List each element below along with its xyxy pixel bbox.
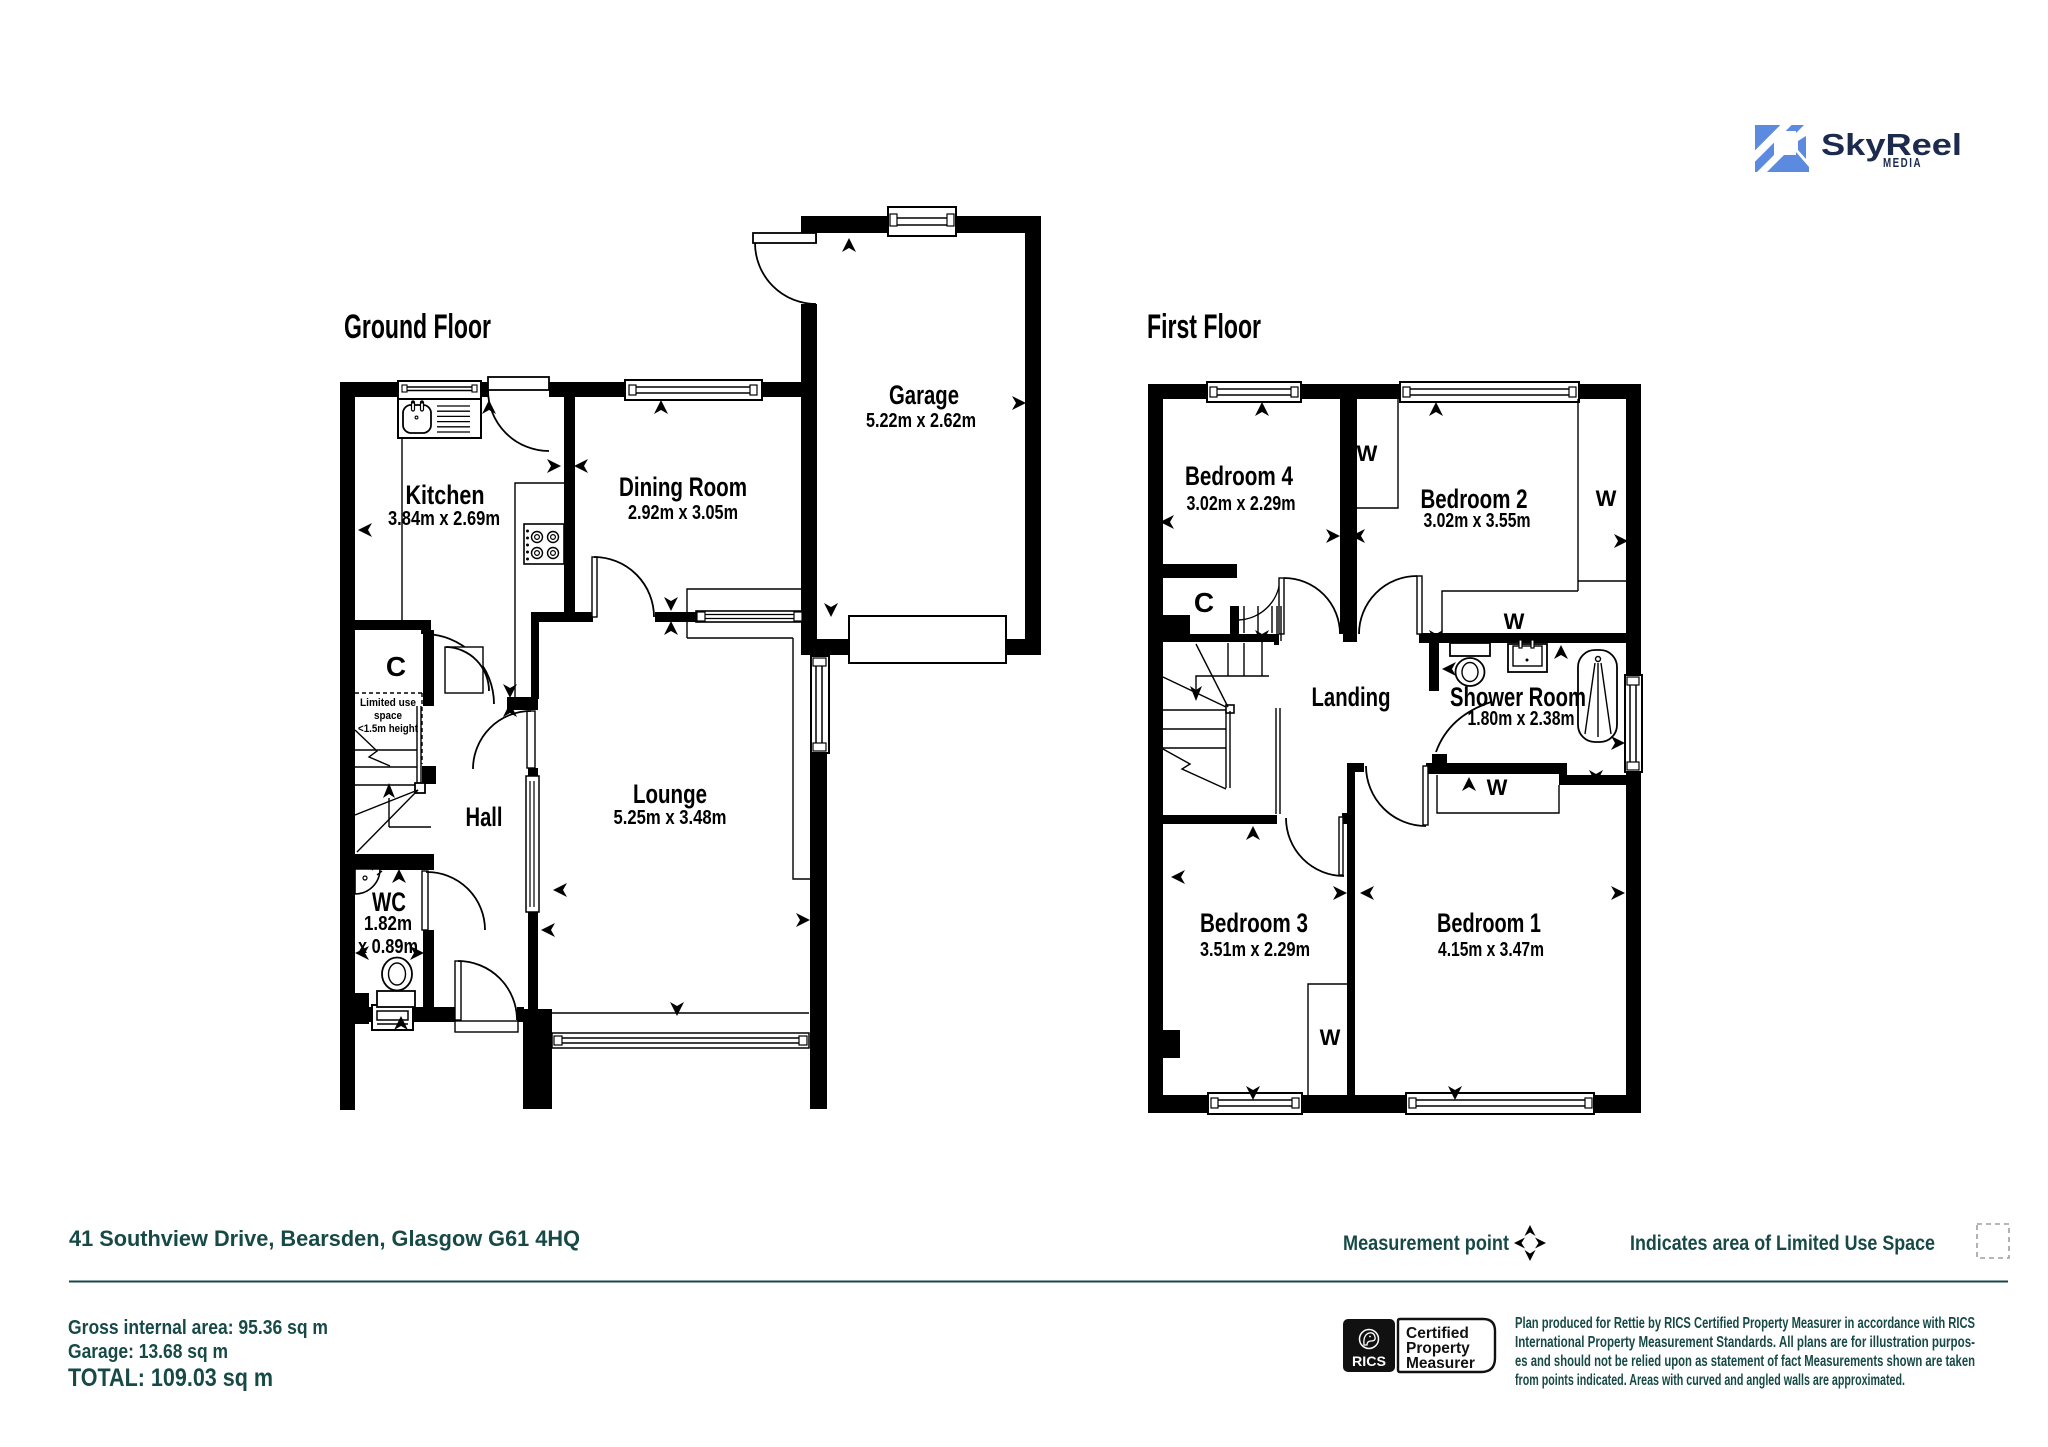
svg-text:Bedroom 3: Bedroom 3 (1200, 908, 1308, 938)
svg-text:W: W (1504, 609, 1525, 634)
svg-text:MEDIA: MEDIA (1883, 155, 1922, 170)
svg-text:<1.5m height: <1.5m height (358, 723, 418, 735)
svg-text:W: W (1357, 441, 1378, 466)
svg-text:1.82m: 1.82m (364, 913, 412, 935)
svg-text:4.15m x 3.47m: 4.15m x 3.47m (1438, 939, 1544, 961)
svg-text:1.80m x 2.38m: 1.80m x 2.38m (1468, 708, 1575, 730)
svg-text:41 Southview Drive, Bearsden,: 41 Southview Drive, Bearsden, Glasgow G6… (69, 1226, 580, 1251)
svg-text:3.02m x 2.29m: 3.02m x 2.29m (1187, 493, 1296, 515)
svg-text:Dining Room: Dining Room (619, 472, 747, 502)
svg-text:3.51m x 2.29m: 3.51m x 2.29m (1200, 939, 1310, 961)
svg-text:space: space (374, 710, 402, 722)
svg-text:3.84m x 2.69m: 3.84m x 2.69m (388, 508, 500, 530)
svg-text:International Property Measur: International Property Measurement Stand… (1515, 1334, 1975, 1351)
svg-text:Measurer: Measurer (1406, 1355, 1475, 1372)
svg-text:es and should not be relied up: es and should not be relied upon as stat… (1515, 1353, 1975, 1370)
svg-text:RICS: RICS (1352, 1353, 1386, 1369)
svg-text:First Floor: First Floor (1147, 308, 1261, 346)
svg-text:Ground Floor: Ground Floor (344, 308, 491, 346)
svg-text:Landing: Landing (1312, 682, 1391, 712)
svg-text:Bedroom 4: Bedroom 4 (1185, 461, 1293, 491)
svg-text:3.02m x 3.55m: 3.02m x 3.55m (1424, 510, 1531, 532)
svg-text:Gross internal area: 95.36 sq: Gross internal area: 95.36 sq m (68, 1317, 328, 1339)
svg-text:Hall: Hall (466, 802, 503, 832)
svg-text:W: W (1487, 775, 1508, 800)
svg-text:TOTAL: 109.03 sq m: TOTAL: 109.03 sq m (68, 1364, 273, 1392)
svg-text:Measurement point: Measurement point (1343, 1232, 1509, 1255)
svg-text:Indicates area of Limited Use: Indicates area of Limited Use Space (1630, 1232, 1935, 1255)
svg-text:W: W (1320, 1025, 1341, 1050)
svg-text:Plan produced for Rettie by RI: Plan produced for Rettie by RICS Certifi… (1515, 1315, 1975, 1332)
svg-text:C: C (1194, 587, 1214, 618)
svg-text:Kitchen: Kitchen (406, 480, 485, 510)
svg-text:5.22m x 2.62m: 5.22m x 2.62m (866, 410, 976, 432)
svg-text:from points indicated. Areas w: from points indicated. Areas with curved… (1515, 1372, 1905, 1389)
svg-text:W: W (1596, 486, 1617, 511)
svg-text:Garage: 13.68 sq m: Garage: 13.68 sq m (68, 1341, 228, 1363)
svg-text:Lounge: Lounge (633, 779, 707, 809)
svg-text:Bedroom 1: Bedroom 1 (1437, 908, 1541, 938)
svg-text:Garage: Garage (889, 380, 959, 410)
svg-text:Limited use: Limited use (360, 697, 416, 709)
svg-text:C: C (386, 651, 406, 682)
svg-text:2.92m x 3.05m: 2.92m x 3.05m (628, 502, 738, 524)
svg-text:5.25m x 3.48m: 5.25m x 3.48m (614, 807, 727, 829)
